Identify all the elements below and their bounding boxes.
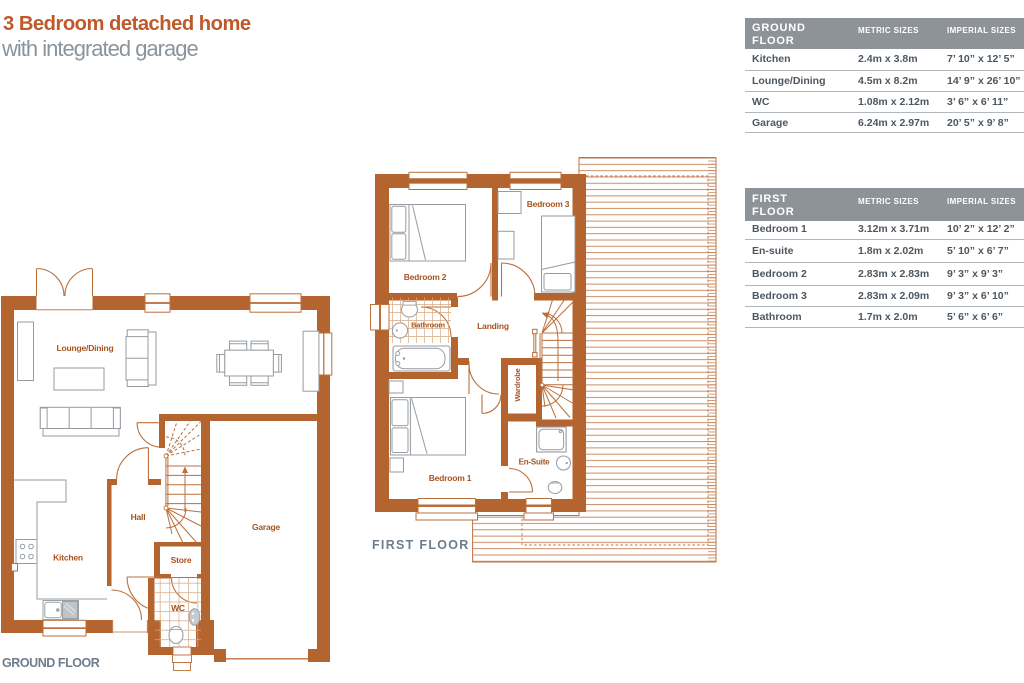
svg-text:En-Suite: En-Suite	[519, 458, 551, 467]
svg-text:Hall: Hall	[131, 512, 146, 522]
svg-text:Wardrobe: Wardrobe	[513, 368, 522, 401]
svg-text:Garage: Garage	[252, 522, 281, 532]
svg-text:Bedroom 1: Bedroom 1	[429, 473, 472, 483]
svg-text:Bedroom 2: Bedroom 2	[404, 272, 447, 282]
svg-text:Lounge/Dining: Lounge/Dining	[57, 343, 114, 353]
svg-text:Bathroom: Bathroom	[411, 321, 445, 330]
svg-text:Bedroom 3: Bedroom 3	[527, 199, 570, 209]
svg-text:Kitchen: Kitchen	[53, 553, 83, 563]
svg-text:Landing: Landing	[477, 321, 509, 331]
svg-text:Store: Store	[171, 555, 192, 565]
svg-text:WC: WC	[171, 603, 185, 613]
